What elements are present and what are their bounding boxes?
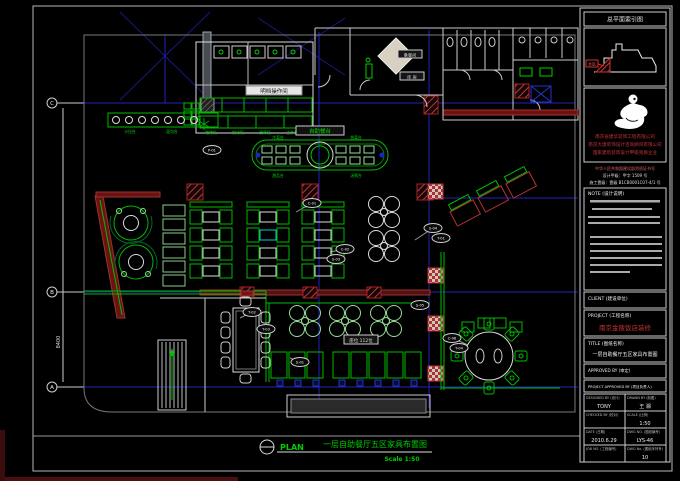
svg-text:咖啡机: 咖啡机 (205, 130, 217, 135)
company-logo (615, 95, 648, 129)
svg-text:2010.6.29: 2010.6.29 (591, 438, 616, 444)
svg-text:南京大唐装饰设计咨询顾问有限公司: 南京大唐装饰设计咨询顾问有限公司 (588, 141, 662, 148)
annotation-tags: C-01 C-02 S-03 S-04 T-01 T-02 T-03 S-05 … (203, 146, 468, 367)
grid-lines (56, 12, 578, 408)
svg-text:DESIGNED BY (设计): DESIGNED BY (设计) (586, 395, 620, 400)
circular-booths (110, 205, 185, 286)
drawing-name: 一层自助餐厅五区家具布置图 (592, 351, 657, 358)
svg-text:国家建筑装饰设计甲级资质企业: 国家建筑装饰设计甲级资质企业 (593, 149, 658, 156)
svg-text:C-06: C-06 (448, 337, 457, 341)
title-header: TITLE (图纸名称) (587, 340, 624, 347)
staircase (158, 340, 186, 410)
svg-text:CHECKED BY (校对): CHECKED BY (校对) (586, 412, 619, 417)
keyplan-header: 总平面索引图 (607, 16, 643, 24)
svg-text:T-04: T-04 (454, 347, 463, 351)
svg-text:S-01: S-01 (296, 361, 304, 365)
note-header: NOTE (设计说明) (588, 190, 624, 197)
plan-title-footer: PLAN 一层自助餐厅五区家具布置图 Scale 1:50 (260, 439, 432, 463)
svg-text:DATE (日期): DATE (日期) (586, 429, 606, 434)
seats-label: 座位 112位 (349, 337, 373, 344)
svg-text:P-01: P-01 (208, 149, 216, 153)
buffet-label: 自助餐台 (309, 127, 332, 135)
key-plan-map: 本区 (586, 44, 656, 72)
room-label: 备餐间 (404, 51, 417, 58)
scale-label: Scale 1:50 (384, 456, 419, 463)
grid-axis-bubbles: C B A 8400 (47, 98, 84, 392)
grid-bubble-label: A (50, 385, 54, 391)
approved-header: APPROVED BY (审定) (588, 367, 631, 374)
svg-text:南京省建华装饰工程有限公司: 南京省建华装饰工程有限公司 (595, 133, 655, 140)
svg-text:面包台: 面包台 (166, 129, 178, 134)
svg-text:C-02: C-02 (341, 248, 349, 252)
svg-text:S-05: S-05 (416, 304, 424, 308)
shaft-box (531, 86, 551, 102)
grid-bubble-label: C (50, 101, 54, 107)
kitchen-equipment-row (214, 46, 301, 58)
svg-text:甜品台: 甜品台 (272, 173, 284, 178)
booth-group-1 (190, 210, 232, 278)
note-lines (588, 200, 662, 273)
svg-text:LYS-46: LYS-46 (637, 438, 654, 444)
project-header: PROJECT (工程名称) (588, 312, 631, 319)
svg-text:制冰机: 制冰机 (232, 130, 244, 135)
dimension-text: 8400 (56, 336, 62, 349)
clover-tables (290, 197, 402, 337)
svg-text:中华人民共和国建设部资质证书号: 中华人民共和国建设部资质证书号 (595, 165, 655, 171)
drawing-title-footer: 一层自助餐厅五区家具布置图 (323, 439, 427, 449)
buffet-island: 自助餐台 冷菜台 热菜台 甜品台 汤粥台 (252, 126, 388, 178)
svg-text:T-01: T-01 (436, 237, 445, 241)
svg-text:JOB NO. (工程编号): JOB NO. (工程编号) (585, 446, 617, 451)
svg-text:王 湘: 王 湘 (639, 403, 651, 410)
project-name: 南京金陵饭店装修 (599, 323, 652, 332)
client-header: CLIENT (建设单位) (588, 295, 628, 302)
svg-text:C-01: C-01 (308, 202, 316, 206)
svg-text:T-03: T-03 (261, 328, 270, 332)
keyplan-tag: 本区 (588, 61, 596, 67)
grid-bubble-label: B (50, 290, 54, 296)
room-label: 库 房 (407, 73, 417, 80)
toilet-area (424, 28, 578, 120)
svg-text:1:50: 1:50 (639, 421, 650, 427)
booth-group-3 (302, 210, 344, 278)
svg-text:沙拉台: 沙拉台 (124, 129, 136, 134)
svg-text:冷菜台: 冷菜台 (272, 135, 284, 140)
cert-lines: 中华人民共和国建设部资质证书号 设计甲级：甲字 1509 号 施工壹级：壹级 B… (589, 165, 660, 185)
title-block: 总平面索引图 本区 南京省建华装饰工程有限公司 南京大唐装饰设计咨询顾问有限公司… (580, 8, 670, 462)
kitchen-label: 明档操作间 (260, 87, 288, 95)
watermark[interactable]: A D CAD之家 中国室内设计 WWW.CADZJ.COM (0, 430, 240, 481)
svg-text:DWG NO. (图纸编号): DWG NO. (图纸编号) (627, 429, 661, 434)
round-table (451, 318, 527, 394)
svg-text:SCALE (比例): SCALE (比例) (627, 412, 649, 417)
cad-drawing-page: C B A 8400 明档操作间 (0, 0, 680, 481)
booth-seating (190, 202, 344, 278)
left-strip (0, 430, 5, 481)
svg-text:10: 10 (642, 455, 648, 461)
svg-text:S-03: S-03 (332, 258, 340, 262)
svg-text:洗杯机: 洗杯机 (259, 130, 271, 135)
project-approved-header: PROJECT APPROVED BY (项目负责人) (588, 384, 652, 389)
serving-labels: 沙拉台 面包台 (124, 129, 178, 134)
svg-text:T-02: T-02 (247, 311, 256, 315)
svg-text:施工壹级：壹级 B1CB0001C07-4/1 号: 施工壹级：壹级 B1CB0001C07-4/1 号 (589, 179, 660, 185)
svg-text:DRAWN BY (制图): DRAWN BY (制图) (627, 395, 656, 400)
angled-booths (447, 166, 537, 227)
booth-group-2 (247, 210, 289, 278)
svg-text:热菜台: 热菜台 (350, 135, 362, 140)
svg-text:设计甲级：甲字 1509 号: 设计甲级：甲字 1509 号 (603, 172, 648, 178)
svg-text:S-04: S-04 (429, 227, 438, 231)
svg-text:汤粥台: 汤粥台 (350, 173, 362, 178)
company-lines: 南京省建华装饰工程有限公司 南京大唐装饰设计咨询顾问有限公司 国家建筑装饰设计甲… (588, 133, 662, 156)
svg-text:TONY: TONY (596, 404, 612, 410)
tag: C-01 C-02 S-03 S-04 T-01 T-02 T-03 S-05 … (203, 146, 468, 367)
bottom-strip (0, 477, 238, 481)
svg-text:DWG No. (图纸序列号): DWG No. (图纸序列号) (627, 446, 664, 451)
floor-plan-canvas: C B A 8400 明档操作间 (0, 0, 680, 481)
plan-label: PLAN (280, 443, 304, 452)
